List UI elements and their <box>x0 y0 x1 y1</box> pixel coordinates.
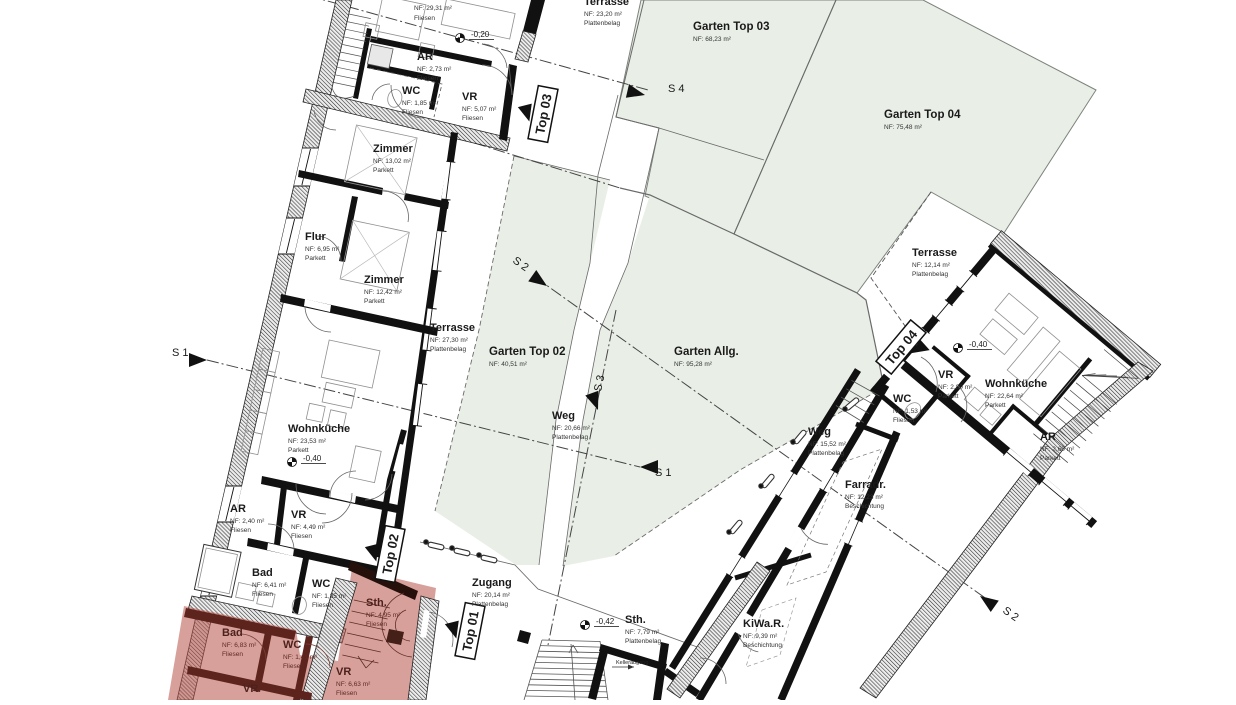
svg-text:Beschichtung: Beschichtung <box>845 503 884 510</box>
svg-text:NF: 12,42 m²: NF: 12,42 m² <box>364 289 403 296</box>
svg-text:Kellerabgang: Kellerabgang <box>616 660 648 666</box>
svg-text:NF: 2,73 m²: NF: 2,73 m² <box>417 66 452 73</box>
svg-text:NF: 23,53 m²: NF: 23,53 m² <box>288 438 327 445</box>
svg-text:KiWa.R.: KiWa.R. <box>743 618 784 630</box>
svg-text:-0,20: -0,20 <box>471 30 490 39</box>
svg-text:NF: 68,23 m²: NF: 68,23 m² <box>693 36 732 43</box>
svg-text:NF: 2,80 m²: NF: 2,80 m² <box>938 384 973 391</box>
svg-text:Plattenbelag: Plattenbelag <box>808 450 845 457</box>
svg-text:NF: 13,02 m²: NF: 13,02 m² <box>373 158 412 165</box>
svg-text:NF: 1,85 m²: NF: 1,85 m² <box>312 593 347 600</box>
svg-text:VR: VR <box>938 369 953 381</box>
svg-text:Plattenbelag: Plattenbelag <box>625 638 662 645</box>
svg-text:Fliesen: Fliesen <box>336 690 357 697</box>
svg-text:Plattenbelag: Plattenbelag <box>430 346 467 353</box>
svg-text:WC: WC <box>283 639 301 651</box>
svg-text:NF: 75,48 m²: NF: 75,48 m² <box>884 124 923 131</box>
svg-text:Zimmer: Zimmer <box>364 274 404 286</box>
svg-text:NF: 1,53 m²: NF: 1,53 m² <box>893 408 928 415</box>
svg-text:VR: VR <box>291 509 306 521</box>
svg-text:NF: 1,85 m²: NF: 1,85 m² <box>402 100 437 107</box>
svg-text:Parkett: Parkett <box>985 402 1006 409</box>
svg-text:Zimmer: Zimmer <box>373 143 413 155</box>
svg-text:Sth.: Sth. <box>366 597 387 609</box>
svg-text:NF: 1,41 m²: NF: 1,41 m² <box>283 654 318 661</box>
svg-text:NF: 15,52 m²: NF: 15,52 m² <box>808 441 847 448</box>
svg-text:S 1: S 1 <box>172 347 189 359</box>
svg-text:-0,42: -0,42 <box>596 617 615 626</box>
svg-text:AR: AR <box>230 503 246 515</box>
svg-text:Fliesen: Fliesen <box>414 15 435 22</box>
svg-text:Zugang: Zugang <box>472 577 512 589</box>
svg-text:S 1: S 1 <box>655 467 672 479</box>
svg-text:NF: 29,31 m²: NF: 29,31 m² <box>414 5 453 12</box>
svg-text:Fliesen: Fliesen <box>252 591 273 598</box>
svg-text:Garten Allg.: Garten Allg. <box>674 346 739 358</box>
svg-text:Fliesen: Fliesen <box>230 527 251 534</box>
svg-text:VR: VR <box>462 91 477 103</box>
svg-text:-0,40: -0,40 <box>969 340 988 349</box>
svg-text:Terrasse: Terrasse <box>430 322 475 334</box>
svg-text:NF: 23,20 m²: NF: 23,20 m² <box>584 11 623 18</box>
svg-text:NF: 6,41 m²: NF: 6,41 m² <box>252 582 287 589</box>
svg-text:S 4: S 4 <box>668 83 685 95</box>
svg-text:NF: 4,49 m²: NF: 4,49 m² <box>291 524 326 531</box>
svg-text:NF: 6,63 m²: NF: 6,63 m² <box>336 681 371 688</box>
svg-text:Sth.: Sth. <box>625 614 646 626</box>
svg-text:Wohnküche: Wohnküche <box>288 423 350 435</box>
svg-text:Fliesen: Fliesen <box>283 663 304 670</box>
svg-text:Garten Top 02: Garten Top 02 <box>489 346 565 358</box>
svg-text:NF: 40,51 m²: NF: 40,51 m² <box>489 361 528 368</box>
svg-text:Parkett: Parkett <box>305 255 326 262</box>
svg-text:Terrasse: Terrasse <box>584 0 629 8</box>
svg-text:Plattenbelag: Plattenbelag <box>584 20 621 27</box>
svg-text:NF: 6,83 m²: NF: 6,83 m² <box>222 642 257 649</box>
svg-text:NF: 2,40 m²: NF: 2,40 m² <box>230 518 265 525</box>
svg-text:NF: 95,28 m²: NF: 95,28 m² <box>674 361 713 368</box>
svg-text:NF: 7,79 m²: NF: 7,79 m² <box>625 629 660 636</box>
svg-text:Weg: Weg <box>808 426 831 438</box>
svg-text:NF: 20,66 m²: NF: 20,66 m² <box>552 425 591 432</box>
svg-text:Fliesen: Fliesen <box>366 621 387 628</box>
svg-text:Bad: Bad <box>252 567 273 579</box>
svg-text:Parkett: Parkett <box>364 298 385 305</box>
svg-text:Bad: Bad <box>222 627 243 639</box>
svg-text:Parkett: Parkett <box>1040 455 1061 462</box>
svg-text:Plattenbelag: Plattenbelag <box>912 271 949 278</box>
svg-text:AR: AR <box>1040 431 1056 443</box>
svg-text:Garten Top 03: Garten Top 03 <box>693 21 769 33</box>
svg-text:Beschichtung: Beschichtung <box>743 642 782 649</box>
svg-text:WC: WC <box>402 85 420 97</box>
svg-text:VR: VR <box>336 666 351 678</box>
svg-text:Flur: Flur <box>305 231 326 243</box>
svg-text:Plattenbelag: Plattenbelag <box>472 601 509 608</box>
svg-text:Fliesen: Fliesen <box>222 651 243 658</box>
svg-text:Fliesen: Fliesen <box>893 417 914 424</box>
svg-text:WC: WC <box>893 393 911 405</box>
svg-text:NF: 22,64 m²: NF: 22,64 m² <box>985 393 1024 400</box>
svg-text:NF: 9,39 m²: NF: 9,39 m² <box>743 633 778 640</box>
svg-text:NF: 12,23 m²: NF: 12,23 m² <box>845 494 884 501</box>
svg-text:Fliesen: Fliesen <box>402 109 423 116</box>
svg-text:Weg: Weg <box>552 410 575 422</box>
svg-text:Wohnküche: Wohnküche <box>985 378 1047 390</box>
svg-text:VR: VR <box>243 683 258 695</box>
svg-text:NF: 6,95 m²: NF: 6,95 m² <box>305 246 340 253</box>
svg-text:Terrasse: Terrasse <box>912 247 957 259</box>
svg-text:Fliesen: Fliesen <box>312 602 333 609</box>
svg-text:WC: WC <box>312 578 330 590</box>
svg-text:Fliesen: Fliesen <box>417 75 438 82</box>
svg-text:Parkett: Parkett <box>288 447 309 454</box>
svg-text:NF: 27,30 m²: NF: 27,30 m² <box>430 337 469 344</box>
svg-text:Parkett: Parkett <box>938 393 959 400</box>
svg-text:-0,40: -0,40 <box>303 454 322 463</box>
svg-text:Fliesen: Fliesen <box>462 115 483 122</box>
svg-text:NF: 5,07 m²: NF: 5,07 m² <box>462 106 497 113</box>
svg-text:Farradr.: Farradr. <box>845 479 886 491</box>
svg-text:Fliesen: Fliesen <box>291 533 312 540</box>
svg-text:Plattenbelag: Plattenbelag <box>552 434 589 441</box>
svg-text:NF: 12,14 m²: NF: 12,14 m² <box>912 262 951 269</box>
svg-text:NF: 2,60 m²: NF: 2,60 m² <box>1040 446 1075 453</box>
svg-text:NF: 4,95 m²: NF: 4,95 m² <box>366 612 401 619</box>
svg-text:NF: 20,14 m²: NF: 20,14 m² <box>472 592 511 599</box>
svg-text:Parkett: Parkett <box>373 167 394 174</box>
svg-text:Garten Top 04: Garten Top 04 <box>884 109 961 121</box>
svg-text:AR: AR <box>417 51 433 63</box>
